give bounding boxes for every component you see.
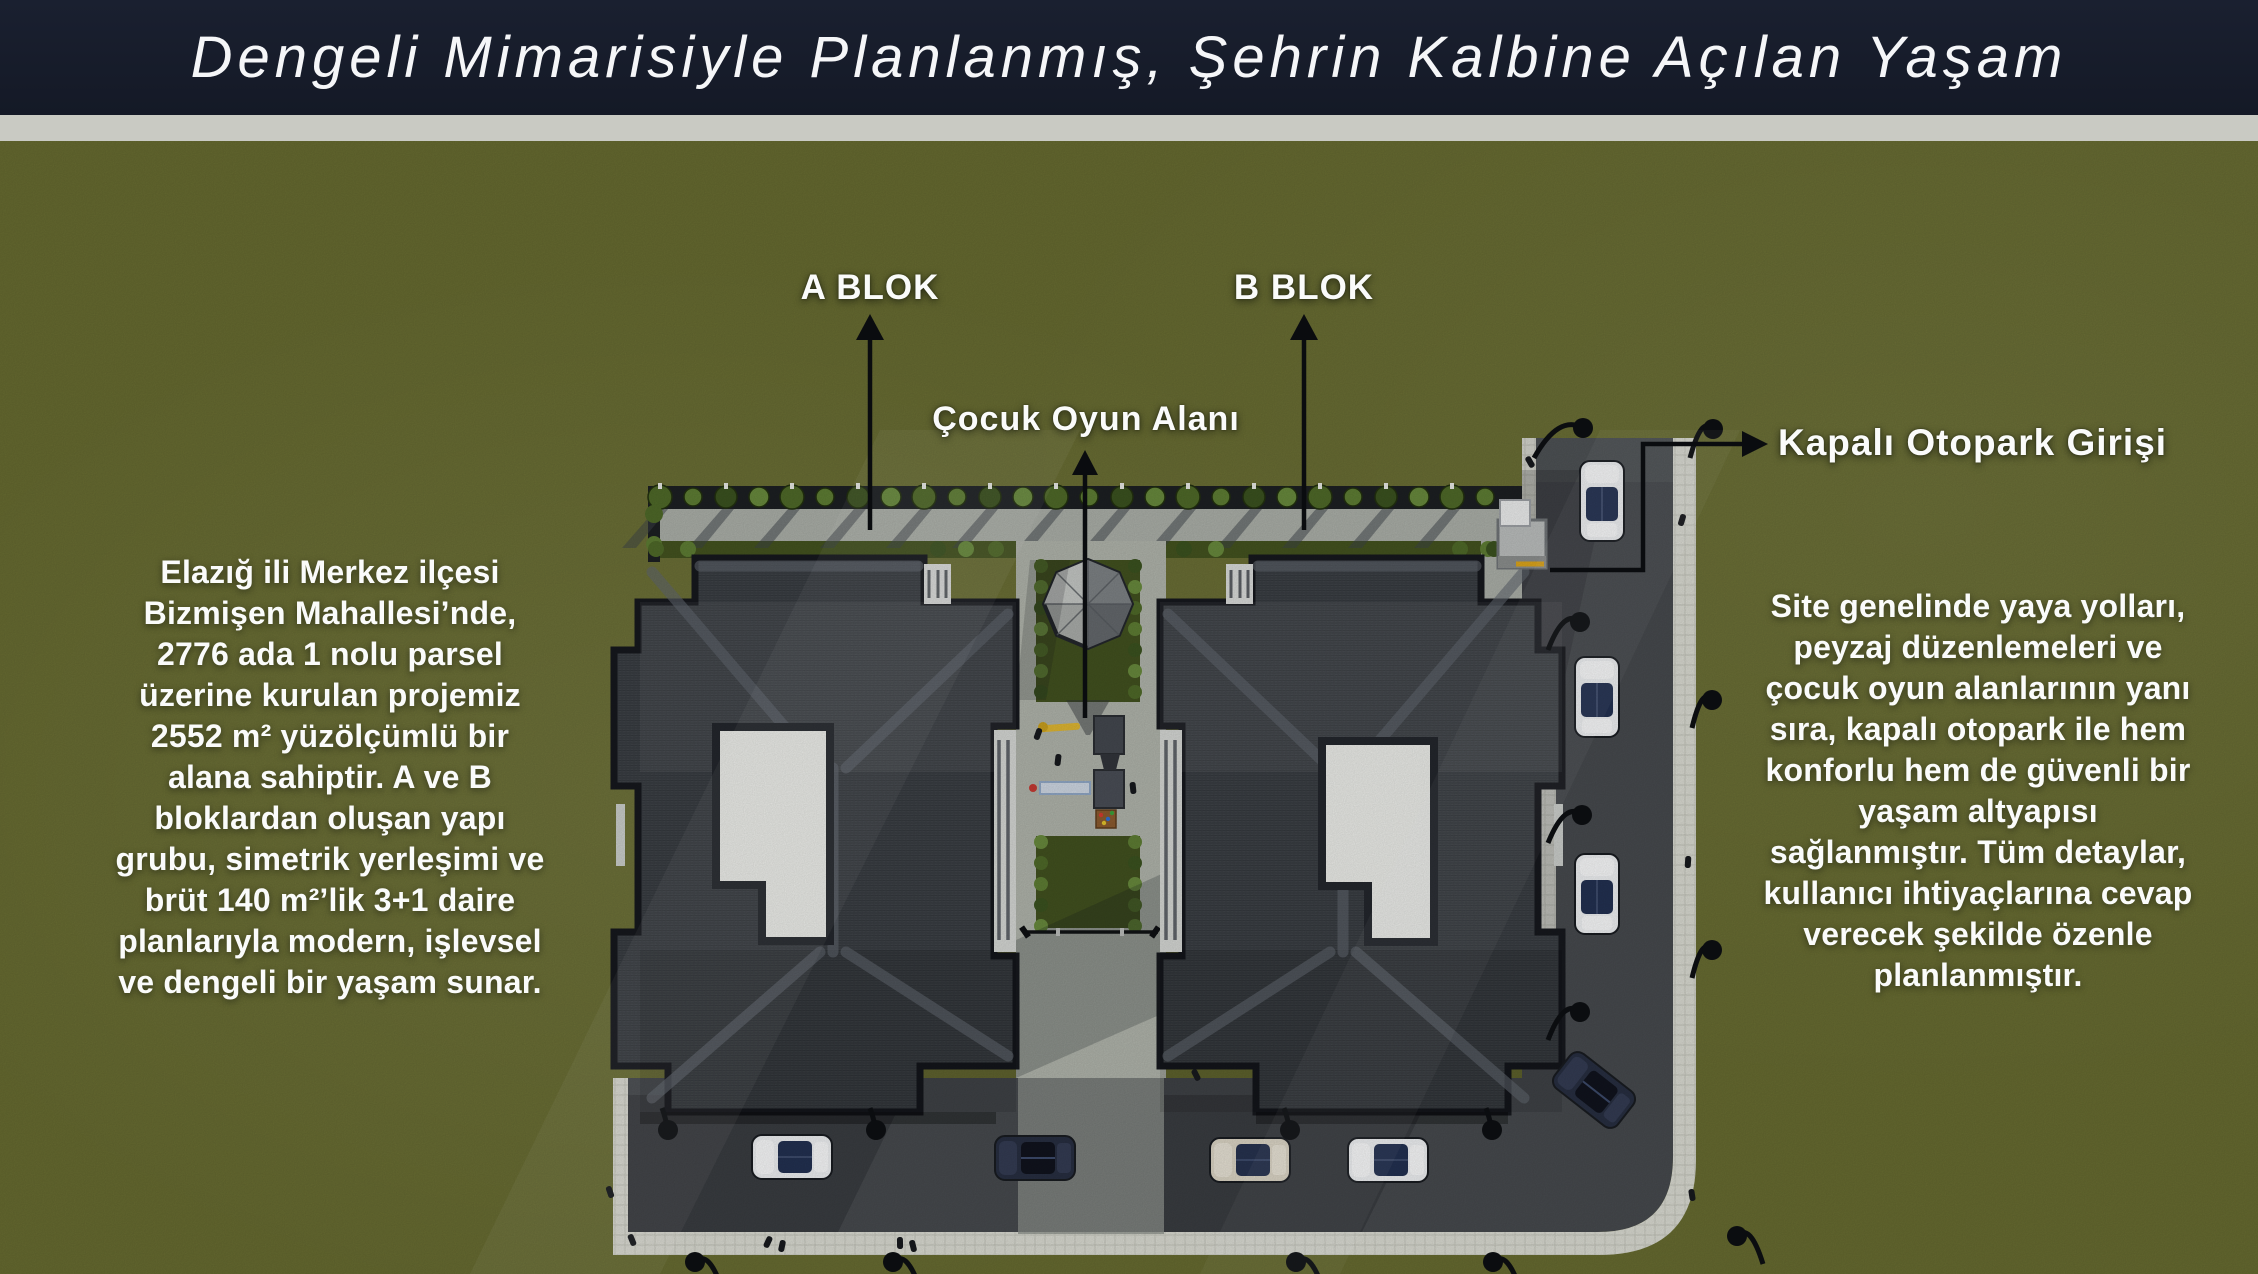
page-title: Dengeli Mimarisiyle Planlanmış, Şehrin K… [191,24,2068,91]
header-divider [0,115,2258,141]
project-description-left: Elazığ ili Merkez ilçesi Bizmişen Mahall… [40,552,620,1003]
label-block-a: A BLOK [801,268,940,308]
infographic-slide: Dengeli Mimarisiyle Planlanmış, Şehrin K… [0,0,2258,1274]
label-playground: Çocuk Oyun Alanı [932,400,1240,439]
label-garage-entrance: Kapalı Otopark Girişi [1778,422,2167,464]
header-bar: Dengeli Mimarisiyle Planlanmış, Şehrin K… [0,0,2258,115]
project-description-right: Site genelinde yaya yolları, peyzaj düze… [1688,586,2258,996]
label-block-b: B BLOK [1234,268,1374,308]
